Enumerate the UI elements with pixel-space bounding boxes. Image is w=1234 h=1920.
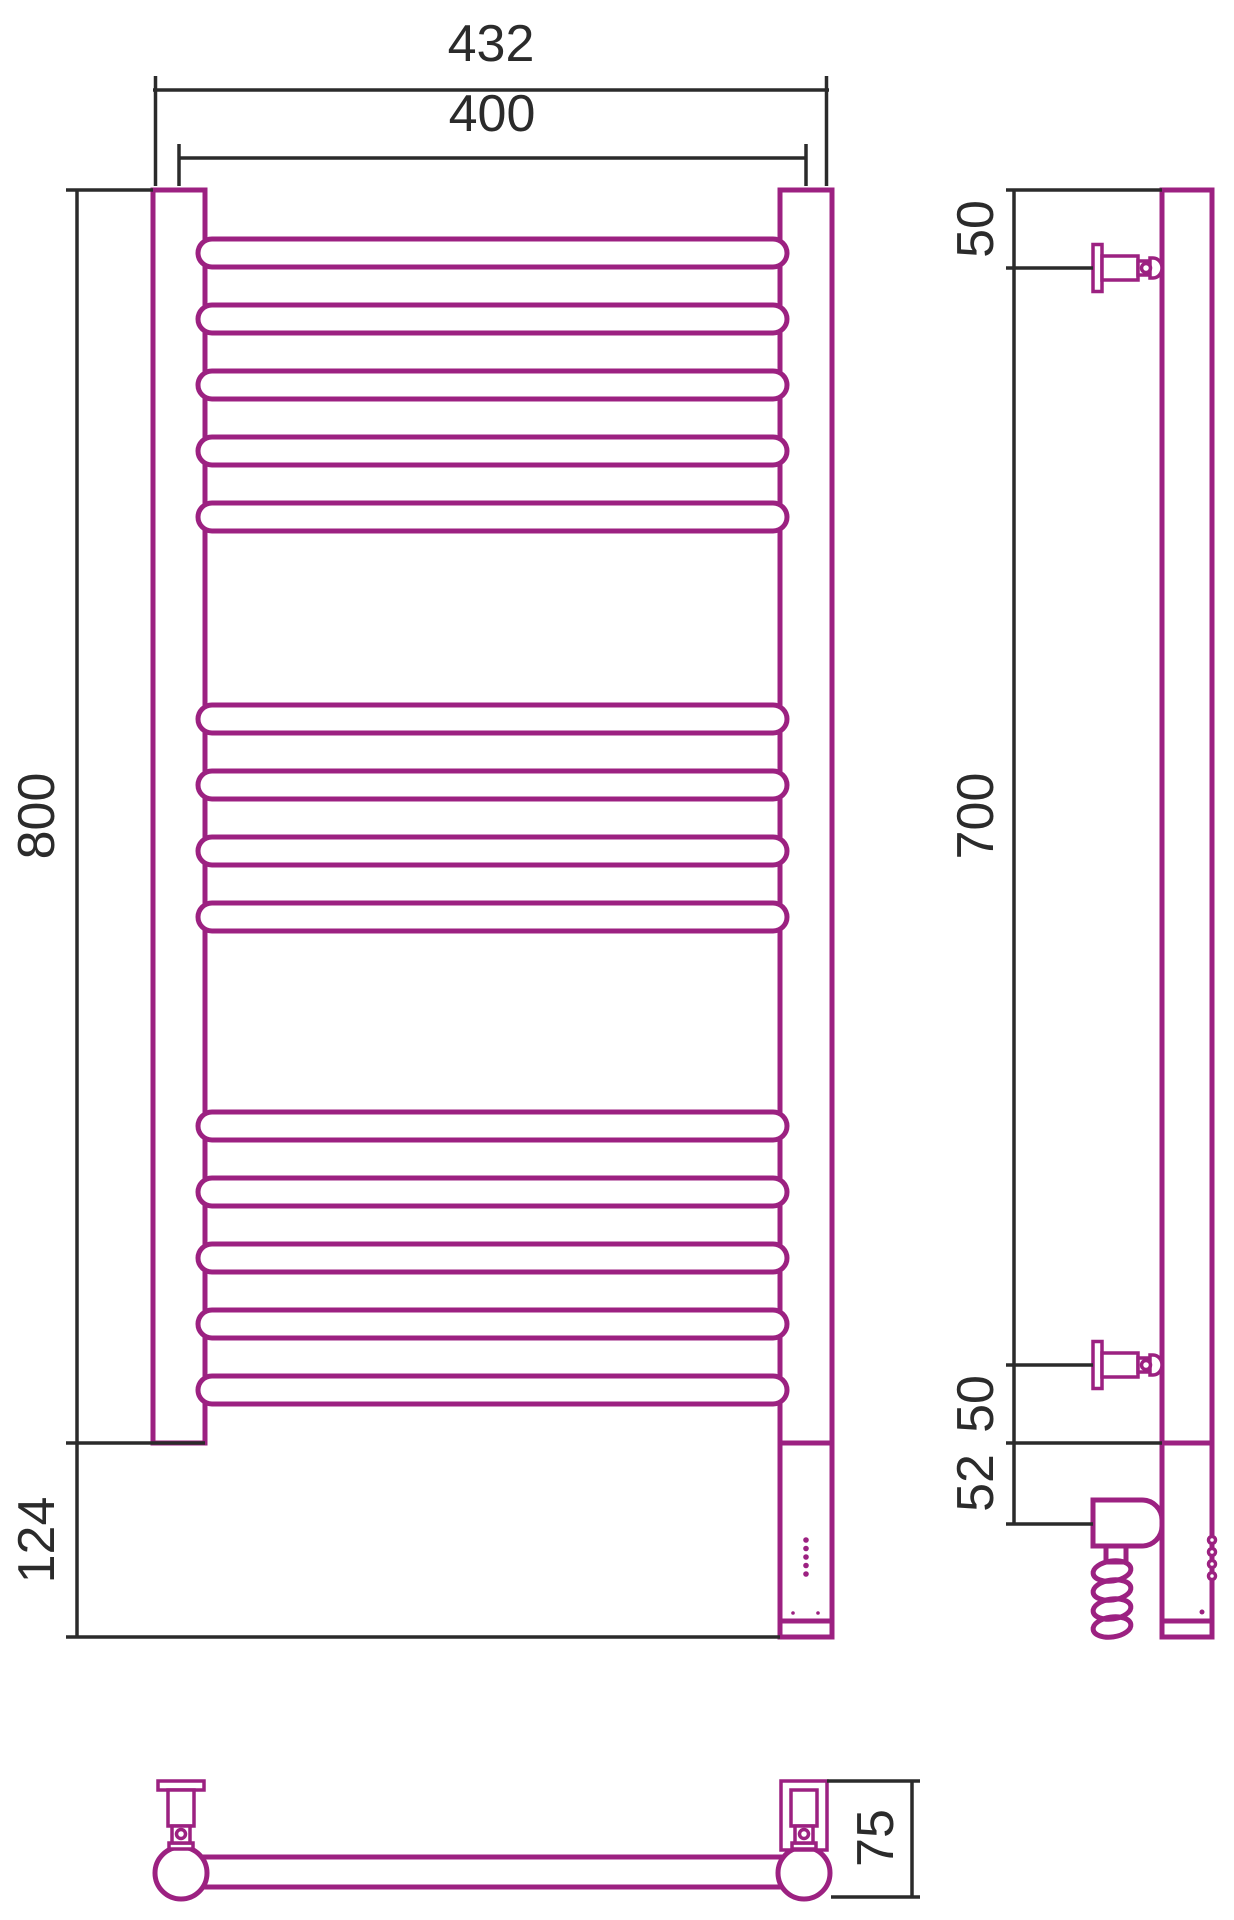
tube-edge-bump	[1209, 1549, 1216, 1556]
rung	[198, 1244, 787, 1272]
dim-label-heater-offset: 52	[947, 1454, 1005, 1512]
dim-depth: 75	[827, 1781, 920, 1897]
technical-drawing: 43240080012450700505275	[0, 0, 1234, 1920]
rung	[198, 305, 787, 333]
rung	[198, 1178, 787, 1206]
rung	[198, 1112, 787, 1140]
tube-dot	[1200, 1610, 1205, 1615]
side-view	[1092, 190, 1216, 1640]
front-view	[153, 190, 832, 1637]
led-indicator-dot	[803, 1571, 809, 1577]
dim-heater-offset: 52	[947, 1443, 1093, 1524]
rung	[198, 503, 787, 531]
bracket-screw	[1142, 1361, 1151, 1370]
bracket-stem	[168, 1790, 194, 1826]
side-tube	[1162, 190, 1212, 1637]
rung	[198, 771, 787, 799]
bottom-view	[155, 1781, 830, 1899]
dim-lower-section: 124	[8, 1443, 780, 1637]
heating-element-body-side	[1093, 1500, 1162, 1546]
rung	[198, 437, 787, 465]
bracket-stem	[791, 1790, 817, 1826]
dim-label-bracket-span: 700	[947, 773, 1005, 860]
drawing-canvas: 43240080012450700505275	[0, 0, 1234, 1920]
bracket-body	[1102, 1353, 1138, 1377]
rung	[198, 1376, 787, 1404]
wall-bracket-side	[1093, 1342, 1162, 1389]
dim-label-bottom-offset: 50	[947, 1375, 1005, 1433]
dim-label-rail-width: 400	[449, 85, 536, 143]
rung	[198, 837, 787, 865]
top-rung-bottom-view	[200, 1857, 786, 1887]
tube-edge-bump	[1209, 1561, 1216, 1568]
bracket-body	[1102, 256, 1138, 280]
dim-label-height: 800	[8, 773, 66, 860]
dim-label-overall-width: 432	[448, 15, 535, 73]
bracket-screw	[177, 1830, 186, 1839]
bracket-screw	[1142, 264, 1151, 273]
tube-edge-bump	[1209, 1537, 1216, 1544]
led-indicator-dot	[803, 1537, 809, 1543]
tube-edge-bump	[1209, 1573, 1216, 1580]
rung	[198, 705, 787, 733]
wall-bracket-side	[1093, 245, 1162, 292]
dim-rail-width: 400	[179, 85, 806, 186]
bracket-screw	[800, 1830, 809, 1839]
dim-label-depth: 75	[847, 1809, 905, 1867]
dim-bracket-span: 700	[947, 268, 1093, 1365]
dim-label-lower-section: 124	[8, 1497, 66, 1584]
led-indicator-dot	[803, 1563, 809, 1569]
led-indicator-dot	[803, 1554, 809, 1560]
collector-tube-section	[778, 1847, 830, 1899]
dim-label-top-offset: 50	[947, 200, 1005, 258]
rung	[198, 1310, 787, 1338]
led-indicator-dot	[803, 1546, 809, 1552]
collector-tube-section	[155, 1847, 207, 1899]
housing-screw-dot	[791, 1611, 795, 1615]
bottom-view-left-bracket	[158, 1781, 204, 1849]
rung	[198, 903, 787, 931]
bottom-view-right-bracket	[781, 1781, 827, 1850]
rung	[198, 371, 787, 399]
housing-screw-dot	[816, 1611, 820, 1615]
rung	[198, 239, 787, 267]
